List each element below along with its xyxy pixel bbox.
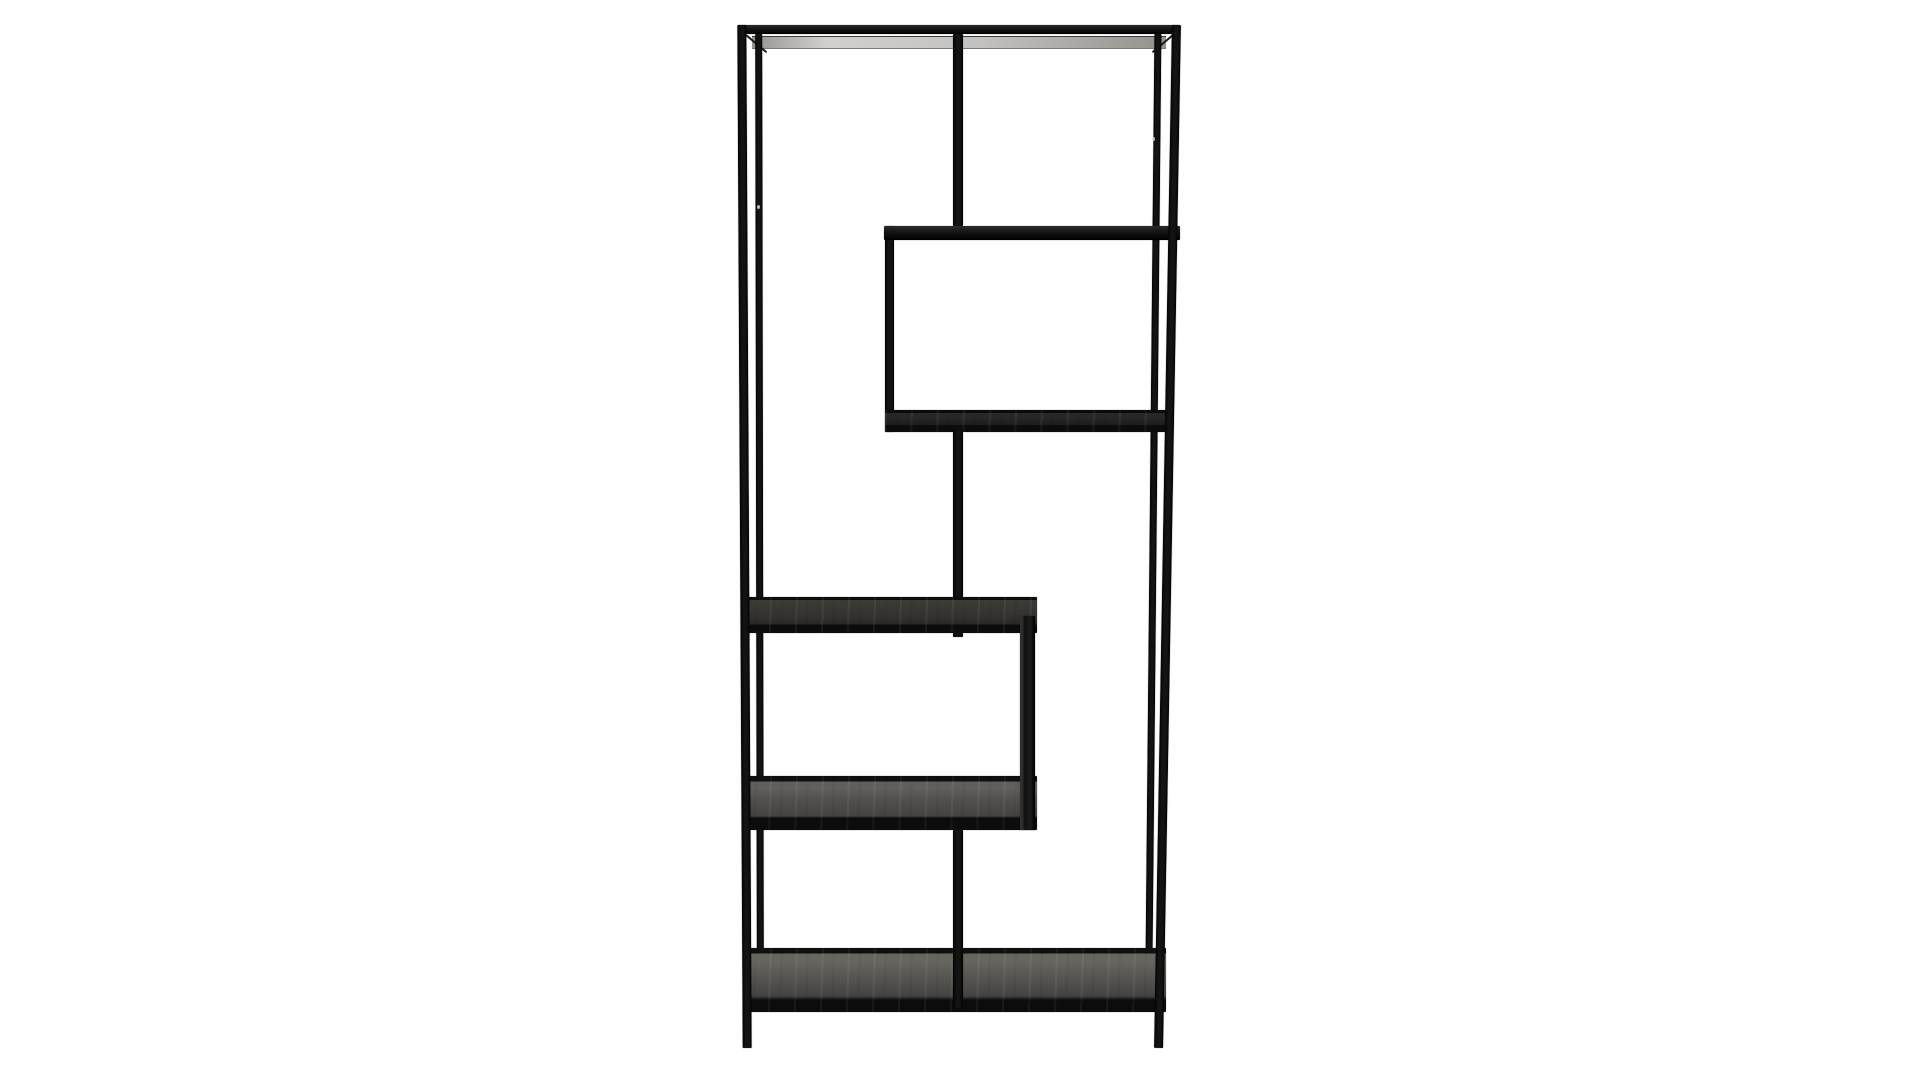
center-divider-upper (953, 34, 963, 226)
right-connector-wall (1020, 616, 1035, 830)
screw-hole-left (757, 205, 760, 209)
wood-grain (744, 597, 1037, 633)
top-frame-bar (738, 25, 1180, 34)
center-divider-lower (953, 830, 963, 1008)
front-left-leg (737, 25, 751, 1048)
wood-grain (744, 776, 1037, 830)
middle-shelf (744, 597, 1037, 633)
box-top-shelf (884, 226, 1180, 240)
screw-hole-right (1152, 137, 1155, 141)
box-bottom-shelf (885, 410, 1172, 432)
product-photo (0, 0, 1920, 1080)
box-left-wall (885, 226, 894, 432)
lower-middle-shelf (744, 776, 1037, 830)
wood-grain (885, 410, 1172, 432)
